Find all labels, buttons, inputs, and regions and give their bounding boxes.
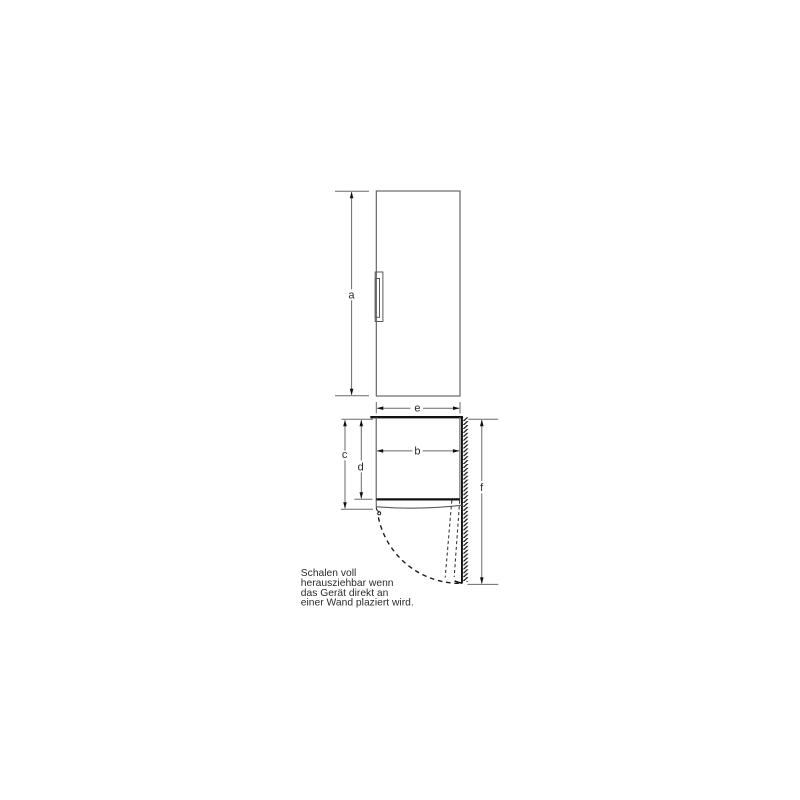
svg-text:b: b	[414, 445, 420, 457]
svg-text:d: d	[358, 462, 364, 474]
svg-text:e: e	[414, 403, 420, 415]
svg-text:c: c	[342, 449, 348, 461]
svg-text:a: a	[348, 290, 355, 302]
svg-text:einer Wand plaziert wird.: einer Wand plaziert wird.	[301, 597, 414, 608]
svg-text:f: f	[480, 482, 484, 494]
svg-text:Schalen voll: Schalen voll	[301, 568, 357, 579]
